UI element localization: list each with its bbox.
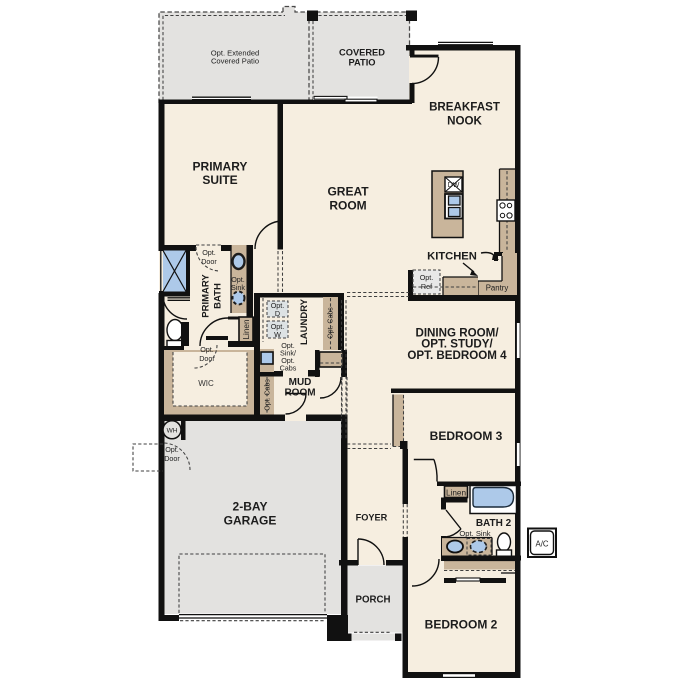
svg-text:W: W bbox=[274, 330, 281, 339]
svg-text:Covered Patio: Covered Patio bbox=[211, 57, 259, 66]
svg-text:Door: Door bbox=[201, 257, 217, 266]
svg-text:BATH: BATH bbox=[213, 283, 224, 309]
svg-text:Opt. Sink: Opt. Sink bbox=[459, 529, 490, 538]
svg-text:PATIO: PATIO bbox=[348, 58, 375, 68]
svg-text:WIC: WIC bbox=[198, 379, 214, 388]
svg-text:MUD: MUD bbox=[289, 377, 312, 388]
svg-text:PRIMARY: PRIMARY bbox=[201, 274, 212, 318]
svg-text:D: D bbox=[275, 309, 280, 318]
svg-text:Opt.: Opt. bbox=[200, 345, 214, 354]
svg-text:Opt.: Opt. bbox=[420, 273, 434, 282]
svg-text:Pantry: Pantry bbox=[486, 283, 509, 292]
svg-text:PORCH: PORCH bbox=[356, 595, 391, 606]
svg-text:ROOM: ROOM bbox=[329, 198, 366, 212]
svg-text:OPT. BEDROOM 4: OPT. BEDROOM 4 bbox=[407, 349, 507, 362]
svg-text:Door: Door bbox=[164, 454, 180, 463]
svg-text:BEDROOM 2: BEDROOM 2 bbox=[425, 618, 498, 632]
svg-text:Opt.: Opt. bbox=[165, 445, 179, 454]
svg-text:Linen: Linen bbox=[446, 488, 466, 497]
svg-text:COVERED: COVERED bbox=[339, 48, 385, 58]
svg-text:Opt.: Opt. bbox=[202, 248, 216, 257]
svg-text:GARAGE: GARAGE bbox=[224, 514, 277, 528]
svg-text:Linen: Linen bbox=[242, 319, 251, 339]
svg-text:DW: DW bbox=[448, 182, 460, 189]
svg-text:2-BAY: 2-BAY bbox=[233, 500, 268, 514]
svg-text:BATH 2: BATH 2 bbox=[476, 518, 512, 529]
svg-text:LAUNDRY: LAUNDRY bbox=[299, 298, 310, 345]
svg-text:A/C: A/C bbox=[536, 540, 549, 549]
svg-text:Door: Door bbox=[199, 354, 215, 363]
svg-text:Opt. Cabs: Opt. Cabs bbox=[328, 307, 335, 339]
svg-text:WH: WH bbox=[167, 427, 178, 434]
svg-text:NOOK: NOOK bbox=[447, 114, 482, 127]
svg-text:Cabs: Cabs bbox=[280, 364, 297, 373]
svg-text:Sink: Sink bbox=[231, 283, 245, 292]
svg-text:BREAKFAST: BREAKFAST bbox=[429, 100, 500, 113]
svg-text:PRIMARY: PRIMARY bbox=[193, 160, 248, 174]
svg-text:BEDROOM 3: BEDROOM 3 bbox=[430, 429, 503, 443]
svg-text:SUITE: SUITE bbox=[202, 173, 237, 187]
svg-text:Opt. Cabs: Opt. Cabs bbox=[265, 379, 272, 411]
svg-text:GREAT: GREAT bbox=[327, 185, 369, 199]
svg-text:FOYER: FOYER bbox=[356, 513, 388, 523]
svg-text:KITCHEN: KITCHEN bbox=[427, 251, 477, 263]
